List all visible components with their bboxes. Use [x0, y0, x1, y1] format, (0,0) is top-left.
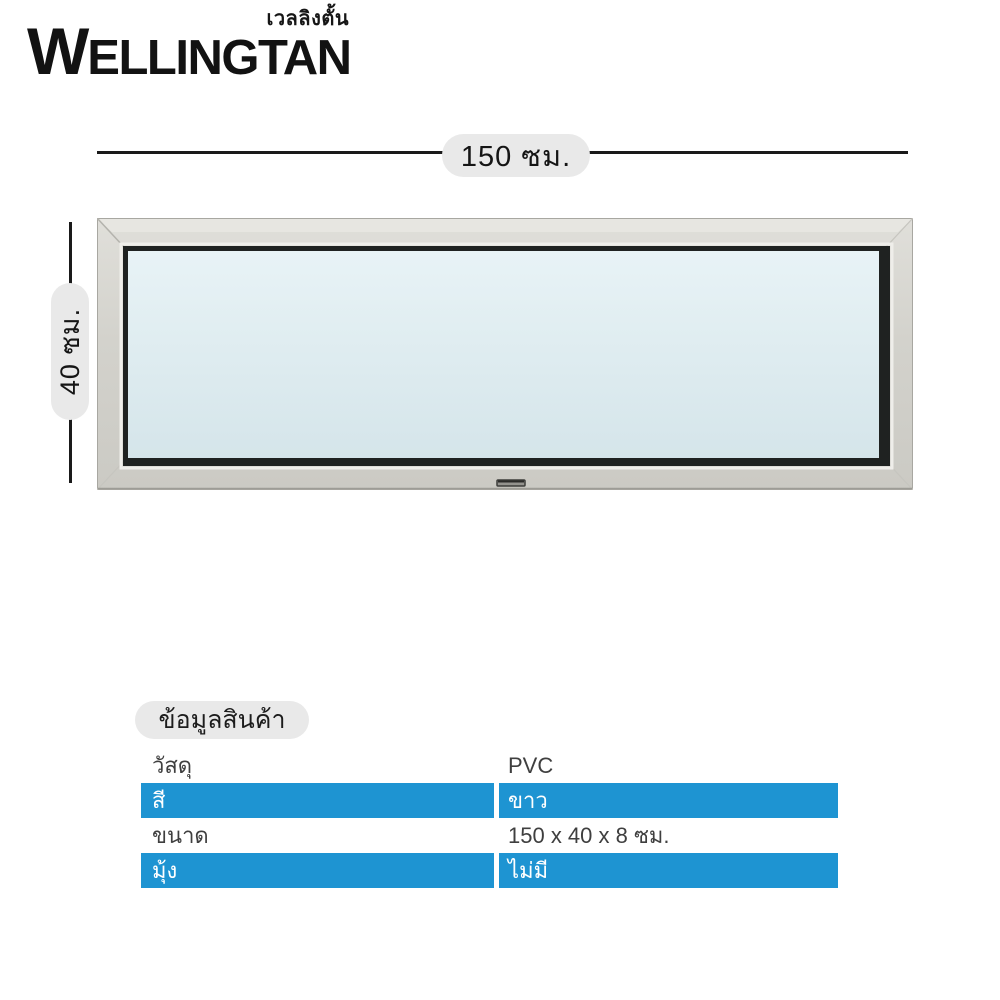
- spec-value: ไม่มี: [499, 853, 838, 888]
- spec-label: ขนาด: [141, 818, 494, 853]
- window-glass: [128, 251, 879, 458]
- spec-table: วัสดุ PVC สี ขาว ขนาด 150 x 40 x 8 ซม. ม…: [141, 748, 838, 888]
- window-image: [97, 218, 913, 490]
- spec-row-size: ขนาด 150 x 40 x 8 ซม.: [141, 818, 838, 853]
- spec-value: ขาว: [499, 783, 838, 818]
- spec-row-color: สี ขาว: [141, 783, 838, 818]
- window-frame-top-face: [98, 219, 912, 232]
- width-dimension-label: 150 ซม.: [442, 134, 590, 177]
- spec-value: PVC: [499, 748, 838, 783]
- window-illustration: [97, 218, 913, 490]
- spec-label: สี: [141, 783, 494, 818]
- product-info-header: ข้อมูลสินค้า: [135, 701, 309, 739]
- spec-row-material: วัสดุ PVC: [141, 748, 838, 783]
- brand-logo-main: WELLINGTAN: [27, 18, 351, 84]
- height-dimension-label-text: 40 ซม.: [49, 308, 92, 395]
- brand-logo: เวลลิงตั้น WELLINGTAN: [27, 6, 349, 86]
- spec-value: 150 x 40 x 8 ซม.: [499, 818, 838, 853]
- spec-row-screen: มุ้ง ไม่มี: [141, 853, 838, 888]
- height-dimension-label: 40 ซม.: [51, 283, 89, 420]
- spec-label: มุ้ง: [141, 853, 494, 888]
- brand-logo-initial: W: [27, 14, 87, 88]
- brand-logo-rest: ELLINGTAN: [87, 31, 350, 85]
- spec-label: วัสดุ: [141, 748, 494, 783]
- product-sheet: เวลลิงตั้น WELLINGTAN 150 ซม. 40 ซม.: [0, 0, 1000, 1000]
